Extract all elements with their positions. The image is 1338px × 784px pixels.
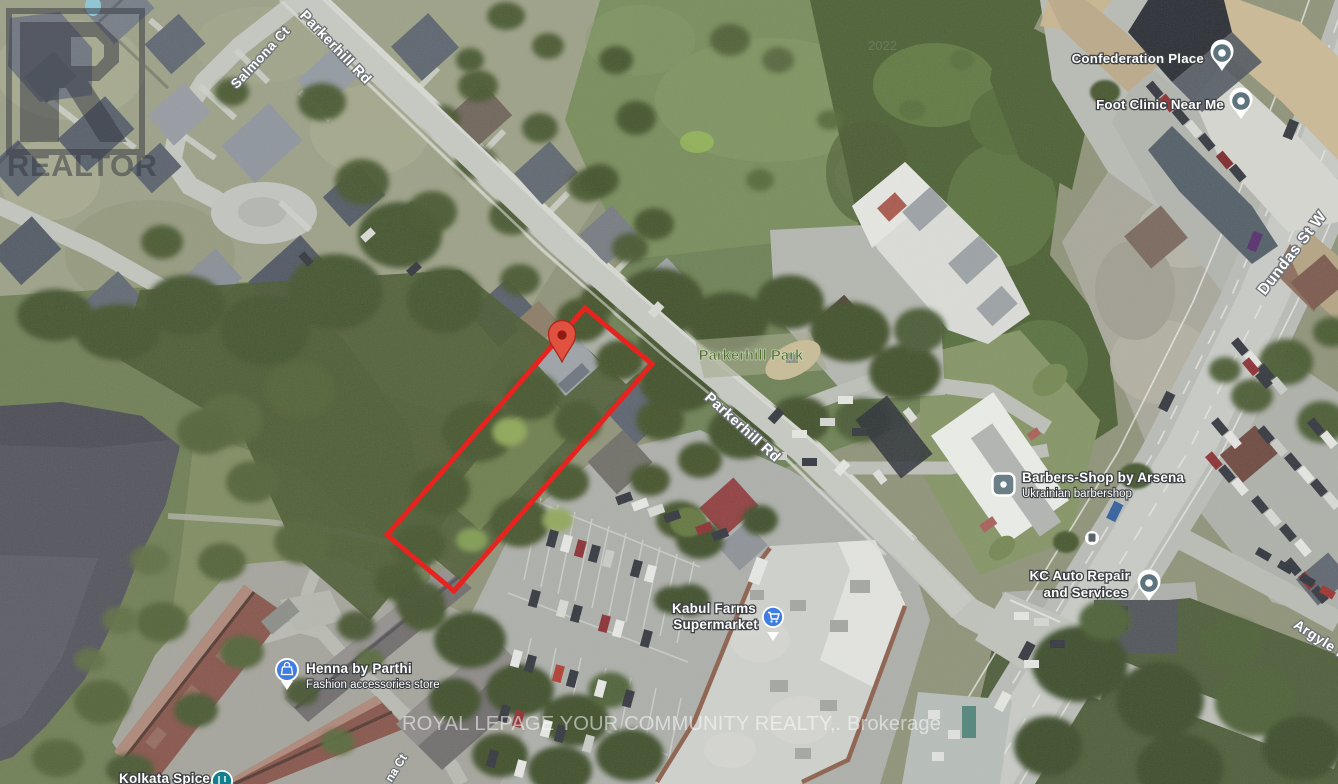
- svg-text:REALTOR: REALTOR: [7, 148, 157, 183]
- svg-text:Ukrainian barbershop: Ukrainian barbershop: [1022, 488, 1132, 500]
- svg-text:ROYAL LEPAGE YOUR COMMUNITY RE: ROYAL LEPAGE YOUR COMMUNITY REALTY,. Bro…: [402, 713, 941, 735]
- svg-text:Kabul Farms: Kabul Farms: [672, 601, 756, 616]
- svg-text:Henna by Parthi: Henna by Parthi: [306, 661, 412, 676]
- svg-text:and Services: and Services: [1044, 585, 1128, 600]
- svg-text:Confederation Place: Confederation Place: [1072, 51, 1204, 66]
- svg-text:Fashion accessories store: Fashion accessories store: [306, 679, 440, 691]
- svg-text:Kolkata Spice: Kolkata Spice: [119, 771, 210, 784]
- svg-text:Barbers-Shop by Arsena: Barbers-Shop by Arsena: [1022, 470, 1184, 485]
- svg-text:Parkerhill Park: Parkerhill Park: [699, 348, 804, 364]
- svg-text:2022: 2022: [868, 38, 897, 53]
- svg-text:Foot Clinic Near Me: Foot Clinic Near Me: [1096, 97, 1224, 112]
- svg-text:Supermarket: Supermarket: [673, 617, 758, 632]
- svg-text:KC Auto Repair: KC Auto Repair: [1029, 568, 1130, 583]
